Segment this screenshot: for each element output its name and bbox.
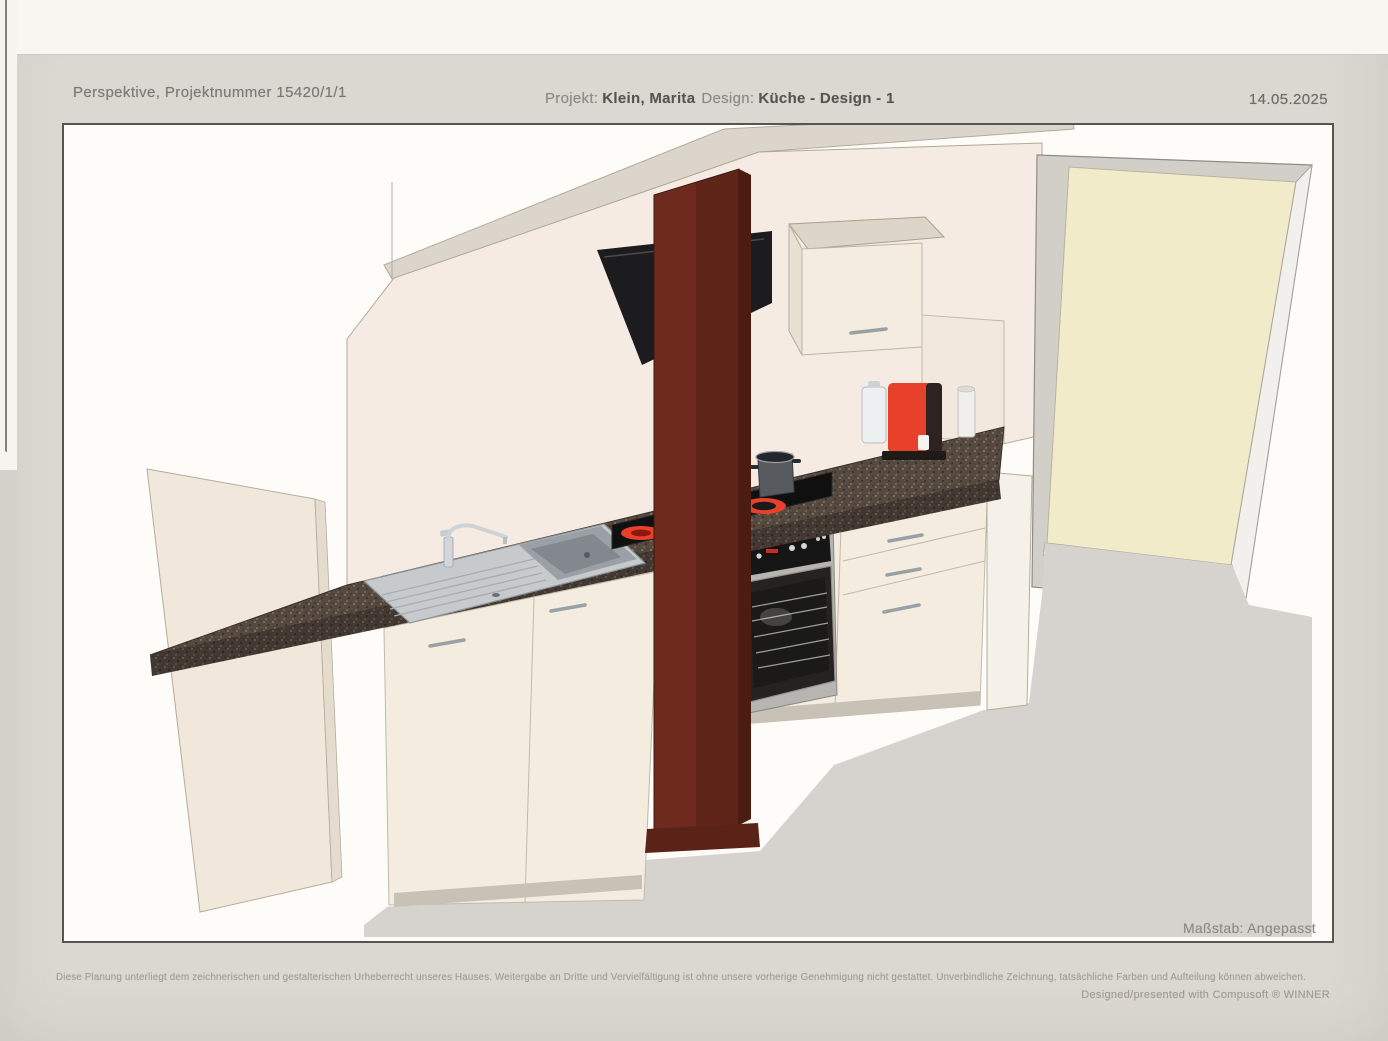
support-pillar <box>645 169 760 853</box>
espresso-cup <box>918 435 929 450</box>
scan-left-strip <box>0 0 17 470</box>
project-value: Klein, Marita <box>602 90 695 107</box>
drawing-frame: Maßstab: Angepasst <box>62 123 1334 943</box>
design-value: Küche - Design - 1 <box>758 90 894 107</box>
design-label: Design: <box>701 90 754 107</box>
scale-note: Maßstab: Angepasst <box>1183 920 1316 936</box>
canister <box>958 389 975 437</box>
date: 14.05.2025 <box>1249 91 1328 108</box>
page-title: Perspektive, Projektnummer 15420/1/1 <box>73 84 347 101</box>
scanned-plan-page: Perspektive, Projektnummer 15420/1/1 Pro… <box>0 0 1388 1041</box>
kitchen-perspective-rendering <box>64 125 1328 937</box>
footer-disclaimer: Diese Planung unterliegt dem zeichnerisc… <box>56 971 1306 983</box>
sink-base-cabinet <box>384 571 659 907</box>
scan-artifact-line <box>5 0 7 452</box>
water-tank <box>862 387 886 443</box>
scan-top-band <box>0 0 1388 55</box>
footer-credit: Designed/presented with Compusoft ® WINN… <box>1081 989 1330 1001</box>
project-label: Projekt: <box>545 90 598 107</box>
project-info: Projekt:Klein, MaritaDesign:Küche - Desi… <box>545 90 901 107</box>
end-panel <box>987 472 1032 710</box>
